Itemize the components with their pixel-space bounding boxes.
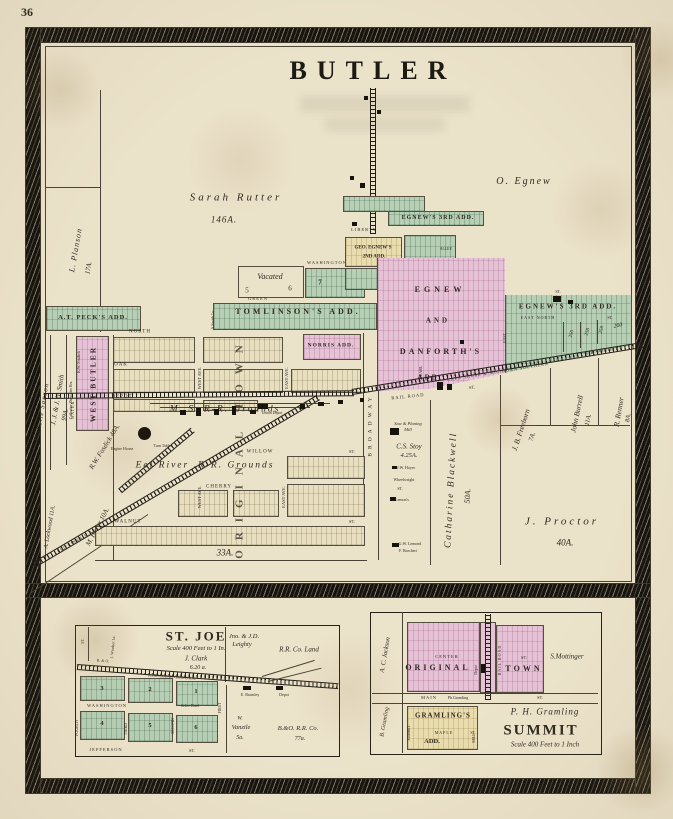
- building: [338, 400, 343, 404]
- depot-building: [276, 686, 283, 690]
- building: [318, 402, 324, 406]
- town-block: [113, 337, 195, 363]
- block-number-7: 7: [318, 280, 322, 287]
- parcel-line: [430, 400, 431, 565]
- parcel-label-proctor: J. Proctor: [525, 517, 599, 528]
- street-label-cherry: CHERRY: [206, 485, 232, 490]
- street-label-east-north: EAST NORTH: [521, 316, 555, 320]
- parcel-line: [95, 560, 367, 561]
- building: [360, 183, 365, 188]
- building: [392, 543, 399, 547]
- addition-label-and: AND: [426, 318, 450, 325]
- inset-summit-scale: Scale 400 Feet to 1 Inch: [511, 742, 579, 749]
- inset-summit-title: SUMMIT: [503, 724, 578, 739]
- addition-block-grid: [343, 196, 425, 212]
- parcel-area-bo-co: 77a.: [295, 736, 306, 742]
- building: [180, 410, 186, 415]
- parcel-area-clark: 6.20 a.: [190, 665, 207, 671]
- street-label-east: EAST: [503, 333, 507, 343]
- parcel-label-bo-co: B.&O. R.R. Co.: [278, 726, 319, 733]
- building: [232, 406, 236, 415]
- atlas-page: 36 BUTLER L. Planson 17A. Sarah Rutter 1…: [0, 0, 673, 819]
- street-label-willow: WILLOW: [247, 450, 274, 455]
- block-number-3: 3: [100, 686, 103, 693]
- parcel-line: [66, 335, 67, 465]
- parcel-area-proctor: 40A.: [557, 539, 574, 548]
- building: [392, 466, 397, 469]
- street-label-rail-road: RAIL ROAD: [498, 645, 502, 676]
- mill-building: [390, 428, 399, 435]
- addition-label-danforths: DANFORTH'S: [400, 348, 482, 356]
- town-block: [113, 369, 195, 393]
- building: [568, 300, 573, 304]
- street-suffix: ST.: [537, 696, 543, 701]
- parcel-label-vanzile-1: W.: [237, 716, 242, 722]
- addition-label-gramlings-add: ADD.: [424, 739, 440, 746]
- town-block: [178, 490, 228, 517]
- street-line-main: [372, 693, 598, 694]
- addition-label-west-butler: WEST BUTLER: [89, 346, 97, 422]
- town-block: [287, 456, 365, 479]
- street-suffix: ST.: [397, 487, 402, 491]
- parcel-line: [225, 627, 226, 682]
- street-label-first: FIRST: [218, 703, 222, 714]
- vacated-label: Vacated: [257, 273, 282, 281]
- building: [243, 686, 251, 690]
- street-label-east-ave: EAST AVE.: [282, 486, 287, 508]
- street-label-washington: WASHINGTON: [307, 261, 347, 266]
- block-number-2: 2: [148, 687, 151, 694]
- street-label-east-ave: EAST AVE.: [285, 367, 290, 389]
- label-eel-river-grounds: Eel River .R-R. Grounds: [136, 461, 275, 471]
- street-label-mill: MILL: [473, 733, 477, 742]
- parcel-label-wheelwright: Wheelwright: [394, 478, 415, 482]
- addition-label-egnews-3rd-east: EGNEW'S 3RD ADD.: [519, 304, 617, 311]
- lot-line: [563, 322, 564, 352]
- label-union-depot: Union Depot: [262, 411, 283, 415]
- parcel-label-borchert: F. Borchert: [399, 549, 417, 553]
- addition-label-pecks: A.T. PECK'S ADD.: [58, 315, 128, 322]
- border-band-top: [26, 28, 650, 42]
- building: [377, 110, 381, 114]
- parcel-label-clark: J. Clark: [185, 656, 208, 663]
- addition-label-egnews-3rd: EGNEW'S 3RD ADD.: [402, 215, 475, 221]
- street-label-second: SECOND: [171, 718, 175, 734]
- parcel-label-ph-gramling: P. H. Gramling: [511, 708, 580, 717]
- addition-label-norris: NORRIS ADD.: [308, 343, 355, 349]
- railroad-north-track: [370, 88, 376, 234]
- street-suffix: ST.: [555, 290, 560, 294]
- parcel-line: [88, 627, 89, 661]
- parcel-line: [598, 358, 599, 425]
- street-suffix: ST.: [349, 520, 355, 525]
- parcel-label-vanzile-2: Vanzile: [232, 725, 251, 732]
- street-label-oak: OAK: [114, 363, 128, 368]
- street-label-fourth: FOURTH: [75, 720, 79, 736]
- railroad-label-bo: B. & O.: [97, 659, 110, 664]
- building: [447, 384, 452, 390]
- bleed-through: [300, 96, 470, 112]
- railroad-track-summit: [485, 614, 491, 700]
- map-title: BUTLER: [290, 58, 457, 84]
- street-label-walnut: WALNUT: [114, 520, 141, 525]
- label-town: TOWN: [505, 665, 542, 673]
- building: [390, 497, 396, 501]
- parcel-area-rutter: 146A.: [211, 216, 237, 225]
- street-suffix: ST.: [349, 450, 355, 455]
- addition-label-gramlings: GRAMLING'S: [415, 713, 471, 720]
- parcel-label-stoy: C.S. Stoy: [396, 444, 421, 451]
- street-label-main: MAIN: [421, 696, 437, 701]
- block-number-6: 6: [288, 286, 292, 293]
- parcel-line: [100, 90, 101, 332]
- parcel-line: [550, 368, 551, 425]
- building: [360, 398, 364, 402]
- bleed-through: [325, 118, 445, 131]
- building: [460, 340, 464, 344]
- lot-line: [580, 322, 581, 348]
- turntable: [138, 427, 151, 440]
- building: [214, 409, 219, 415]
- addition-label-egnew: EGNEW: [415, 286, 466, 294]
- parcel-label-kwfosdick: K.W. Fosdick: [77, 351, 81, 373]
- parcel-label-leighty-1: Jno. & J.D.: [229, 634, 259, 641]
- street-label-summit: SUMMIT: [408, 725, 412, 740]
- parcel-area-hubbell: 33A.: [217, 549, 234, 558]
- building: [364, 96, 368, 100]
- street-suffix: ST.: [189, 749, 195, 754]
- block-number-4: 4: [100, 721, 103, 728]
- street-label-green: GREEN: [248, 297, 268, 302]
- building: [250, 410, 256, 414]
- label-ph-gramling-small: Ph.Gramling: [448, 696, 469, 700]
- building: [437, 382, 443, 390]
- parcel-label-cathrs: Catharine Showalter Hrs.: [70, 381, 74, 420]
- building: [352, 222, 357, 226]
- depot-building: [481, 664, 485, 673]
- alley-label: ALLEY: [440, 248, 452, 252]
- street-line-main: [372, 703, 598, 704]
- page-number: 36: [21, 5, 33, 20]
- parcel-label-lemons: Lemon's: [395, 498, 409, 502]
- parcel-label-rutter: Sarah Rutter: [190, 193, 283, 204]
- border-band-divider: [26, 584, 650, 597]
- street-label-maple: MAPLE: [435, 731, 454, 735]
- town-block: [287, 484, 365, 517]
- depot-building: [258, 404, 268, 409]
- street-label-liberty: LIBERTY: [351, 228, 377, 233]
- street-suffix: ST.: [521, 656, 527, 661]
- block-number-5: 5: [245, 288, 249, 295]
- street-label-center: CENTER: [435, 655, 459, 660]
- inset-stjoe-title: ST. JOE: [166, 630, 227, 643]
- parcel-label-mottinger: S.Mottinger: [550, 654, 583, 661]
- street-label-west-ave: WEST AVE.: [198, 486, 203, 509]
- inset-stjoe-scale: Scale 400 Feet to 1 In.: [167, 646, 226, 653]
- parcel-label-rrco-land: R.R. Co. Land: [279, 647, 319, 654]
- parcel-line: [226, 685, 227, 753]
- border-band-bottom: [26, 779, 650, 793]
- street-label-broadway: BROADWAY: [368, 393, 374, 456]
- lot-line: [597, 320, 598, 344]
- street-label-third: THIRD: [124, 723, 128, 735]
- parcel-label-lemond: G.W. Lemond: [399, 542, 422, 546]
- street-suffix: ST.: [81, 638, 85, 643]
- parcel-line: [50, 335, 51, 470]
- street-label-north: NORTH: [129, 330, 151, 335]
- addition-label-tomlinsons: TOMLINSON'S ADD.: [235, 308, 360, 316]
- parcel-area-blackwell: 50A.: [464, 488, 473, 503]
- parcel-area-stoy: 4.25A.: [401, 453, 418, 460]
- label-engine-house: Engine House: [111, 447, 134, 451]
- parcel-label-oegnew: O. Egnew: [496, 177, 551, 187]
- parcel-line: [46, 187, 100, 188]
- street-label-washington: WASHINGTON: [87, 704, 127, 709]
- label-original: ORIGINAL: [405, 664, 470, 672]
- parcel-line: [500, 375, 501, 565]
- block-number-5: 5: [148, 723, 151, 730]
- addition-label-geo-egnews-1: GEO. EGNEW'S: [355, 246, 392, 251]
- town-block: [95, 526, 365, 546]
- street-suffix: ST.: [469, 385, 476, 390]
- parcel-label-leighty-2: Leighty: [232, 642, 252, 649]
- label-depot: Depot: [279, 693, 289, 697]
- block-number-1: 1: [194, 689, 197, 696]
- label-depot: Depot: [475, 665, 479, 674]
- street-label-west-ave: WEST AVE.: [198, 367, 203, 390]
- parcel-label-hoyer: J.W. Hoyer: [397, 466, 415, 470]
- building: [196, 408, 201, 416]
- label-stjoe-hotel: St.Joe Hotel: [181, 705, 200, 709]
- label-saw-planing: Saw & Planing: [394, 422, 422, 427]
- block-number-6: 6: [194, 725, 197, 732]
- label-mill: Mill: [404, 428, 412, 433]
- building: [350, 176, 354, 180]
- street-suffix: ST.: [607, 316, 612, 320]
- parcel-label-asmith: A.Smith 1a.: [211, 310, 215, 329]
- border-band-right: [636, 28, 650, 793]
- label-bromley: E. Bromley: [241, 693, 259, 697]
- parcel-line: [402, 612, 403, 753]
- building: [553, 296, 561, 302]
- label-turn-table: Turn Table: [153, 444, 170, 448]
- building: [300, 404, 305, 409]
- parcel-area-vanzile: 5a.: [236, 735, 244, 741]
- street-label-jefferson: JEFFERSON: [89, 748, 122, 753]
